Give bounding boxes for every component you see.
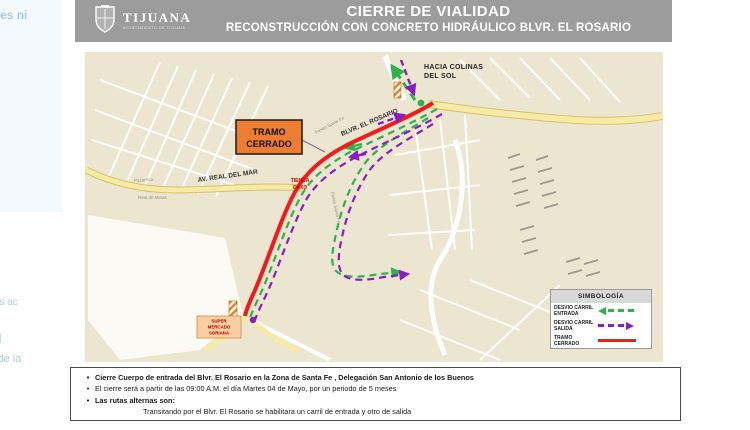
header-banner: TIJUANA AYUNTAMIENTO DE TIJUANA CIERRE D… [75, 0, 672, 42]
closed-segment-symbol [598, 339, 648, 342]
purple-arrow-right-icon [626, 322, 634, 330]
note-bullet-2: • El cierre será a partir de las 09:00 A… [81, 383, 670, 394]
edge-text-fragment: corte de la [0, 353, 38, 365]
note-bullet-1: • Cierre Cuerpo de entrada del Blvr. El … [81, 372, 670, 383]
notes-box: • Cierre Cuerpo de entrada del Blvr. El … [70, 367, 681, 421]
legend-title: SIMBOLOGÍA [551, 290, 651, 303]
barrier-icon [394, 82, 401, 98]
page-title: CIERRE DE VIALIDAD [195, 3, 662, 20]
closed-section-callout: TRAMO CERRADO [236, 120, 302, 154]
svg-text:Real de Minas: Real de Minas [138, 195, 168, 200]
svg-text:SUPER: SUPER [211, 319, 227, 324]
edge-text-fragment: enzajes ni [0, 8, 38, 22]
oxxo-label-line2: OXXO [293, 185, 308, 191]
supermarket-label: SUPER MERCADO SORIANA [197, 316, 241, 338]
legend-item-entry: DESVIO CARRIL ENTRADA [551, 303, 651, 318]
exit-lane-end-dot [250, 317, 256, 323]
page-subtitle: RECONSTRUCCIÓN CON CONCRETO HIDRÁULICO B… [195, 22, 662, 34]
closed-box-line1: TRAMO [253, 127, 286, 137]
legend: SIMBOLOGÍA DESVIO CARRIL ENTRADA DESVIO … [550, 289, 652, 349]
tijuana-crest-icon [93, 5, 117, 35]
green-arrow-left-icon [598, 307, 606, 315]
legend-item-closed: TRAMO CERRADO [551, 333, 651, 348]
destination-label-line1: HACIA COLINAS [424, 64, 483, 71]
junction-dot [418, 100, 425, 107]
edge-text-fragment: spostes ac [0, 297, 38, 308]
exit-lane-symbol [598, 322, 648, 330]
closed-box-line2: CERRADO [246, 139, 292, 149]
svg-text:SORIANA: SORIANA [209, 331, 230, 336]
tijuana-logo: TIJUANA AYUNTAMIENTO DE TIJUANA [93, 5, 191, 35]
slide: enzajes ni o > spostes ac l corte de la … [0, 0, 750, 430]
note-detail: Transitando por el Blvr. El Rosario se h… [81, 406, 670, 417]
logo-tagline: AYUNTAMIENTO DE TIJUANA [123, 26, 191, 30]
entry-lane-symbol [598, 307, 648, 315]
oxxo-label-line1: TIENDA [291, 178, 310, 184]
svg-text:MERCADO: MERCADO [208, 325, 231, 330]
legend-item-exit: DESVIO CARRIL SALIDA [551, 318, 651, 333]
logo-city-name: TIJUANA [123, 11, 191, 24]
edge-text-fragment: o > [0, 24, 38, 35]
note-bullet-3: • Las rutas alternas son: [81, 395, 670, 406]
destination-label-line2: DEL SOL [424, 73, 457, 80]
edge-text-fragment: l [0, 331, 10, 346]
